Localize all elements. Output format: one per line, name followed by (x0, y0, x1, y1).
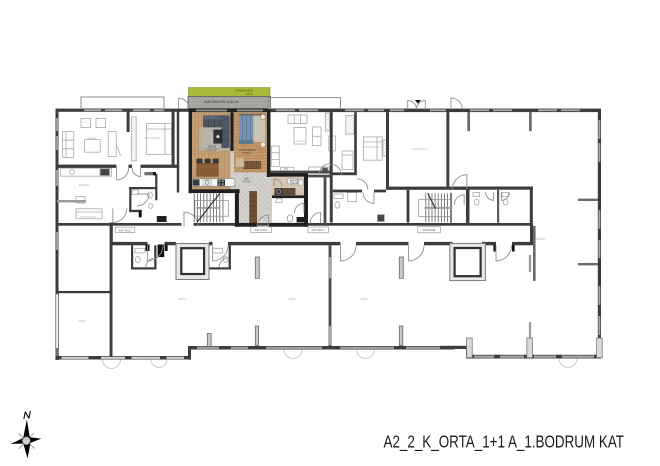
svg-text:16.81 m²: 16.81 m² (207, 149, 217, 152)
svg-text:DEPO: DEPO (288, 297, 295, 301)
svg-text:SALON: SALON (296, 139, 305, 143)
svg-text:YATAK ODASI: YATAK ODASI (80, 215, 97, 219)
svg-text:BANYO: BANYO (290, 179, 298, 182)
svg-text:SALON: SALON (88, 136, 97, 140)
svg-text:KAT HOLÜ: KAT HOLÜ (119, 228, 132, 232)
svg-text:KAPALI BALKON: KAPALI BALKON (235, 90, 253, 93)
svg-text:KAT HOLÜ: KAT HOLÜ (255, 228, 268, 232)
svg-text:A2_2_K_ORTA_1+1 A_1.BODRUM KAT: A2_2_K_ORTA_1+1 A_1.BODRUM KAT (384, 432, 625, 452)
svg-text:ASANSÖR: ASANSÖR (423, 228, 436, 232)
svg-text:AÇIK BALKON 10.43 m²: AÇIK BALKON 10.43 m² (204, 100, 239, 104)
svg-text:DEPO: DEPO (78, 319, 85, 323)
svg-text:4.17 m²: 4.17 m² (242, 181, 251, 184)
svg-text:KAT HOLÜ: KAT HOLÜ (312, 228, 325, 232)
svg-text:DEPO: DEPO (178, 297, 185, 301)
svg-text:9.75 m²: 9.75 m² (243, 152, 252, 155)
svg-text:MUTFAK: MUTFAK (79, 183, 90, 187)
svg-text:5.20 m²: 5.20 m² (290, 182, 298, 185)
svg-text:YATAK ODASI: YATAK ODASI (144, 136, 161, 140)
svg-text:YATAK ODASI: YATAK ODASI (363, 145, 380, 149)
svg-text:4.36 m²: 4.36 m² (245, 93, 253, 96)
svg-text:DEPO: DEPO (360, 297, 367, 301)
